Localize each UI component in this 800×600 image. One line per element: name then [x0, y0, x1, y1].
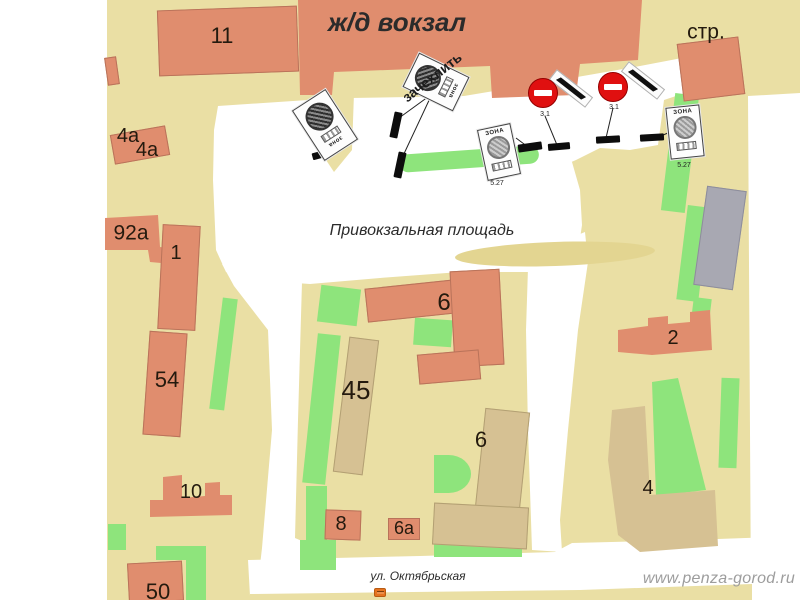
sign-code-label: 5.27	[490, 180, 504, 187]
building-6-wing	[417, 349, 481, 384]
zone-sign-title: ЗОНА	[673, 108, 693, 116]
no-entry-bar	[534, 90, 552, 96]
building-label-92a: 92а	[113, 223, 148, 244]
building-label-50: 50	[146, 581, 170, 600]
zone-sign-5-27: ЗОНА	[665, 104, 704, 159]
zone-sign-plate	[676, 141, 697, 151]
building-label-6a: 6а	[394, 519, 414, 537]
building-label-45: 45	[342, 377, 371, 403]
watermark: www.penza-gorod.ru	[643, 571, 795, 587]
no-parking-icon	[672, 115, 697, 140]
green-patch	[413, 318, 453, 348]
building-label-4a: 4а	[136, 140, 158, 160]
no-parking-icon	[484, 134, 511, 161]
building-str	[677, 36, 746, 101]
sign-code-label: 3.1	[609, 104, 619, 111]
building-6-tan	[432, 503, 529, 550]
zone-sign-plate	[491, 160, 512, 172]
building-label-11: 11	[211, 25, 234, 47]
sign-post-tick	[640, 133, 664, 141]
sign-code-label: 3.1	[540, 111, 550, 118]
building-label-4: 4	[642, 478, 653, 498]
sign-post-tick	[596, 135, 620, 143]
city-map[interactable]: зона зона ЗОНА 5.27 ЗОНА 5.27 3.1 3.1 ж/…	[0, 0, 800, 600]
square-label: Привокзальная площадь	[330, 223, 515, 239]
building-label-54: 54	[155, 369, 179, 391]
green-patch	[108, 524, 126, 550]
street-label: ул. Октябрьская	[370, 570, 465, 582]
green-strip	[718, 378, 739, 469]
building-1	[157, 224, 200, 331]
building-label-1: 1	[170, 243, 181, 263]
building-label-8: 8	[335, 514, 346, 534]
sign-code-label: 5.27	[677, 162, 691, 169]
building-label-6: 6	[475, 429, 487, 451]
no-entry-sign-icon	[528, 78, 558, 108]
building-label-6: 6	[437, 291, 450, 315]
no-entry-sign-icon	[598, 72, 628, 102]
green-patch	[317, 285, 361, 327]
building-label-10: 10	[180, 482, 202, 502]
station-title: ж/д вокзал	[328, 9, 466, 35]
bus-stop-icon	[374, 588, 386, 597]
green-patch	[186, 558, 206, 600]
building-label-2: 2	[667, 328, 678, 348]
construction-label: стр.	[687, 22, 725, 43]
no-entry-bar	[604, 84, 622, 90]
green-patch	[300, 540, 336, 570]
